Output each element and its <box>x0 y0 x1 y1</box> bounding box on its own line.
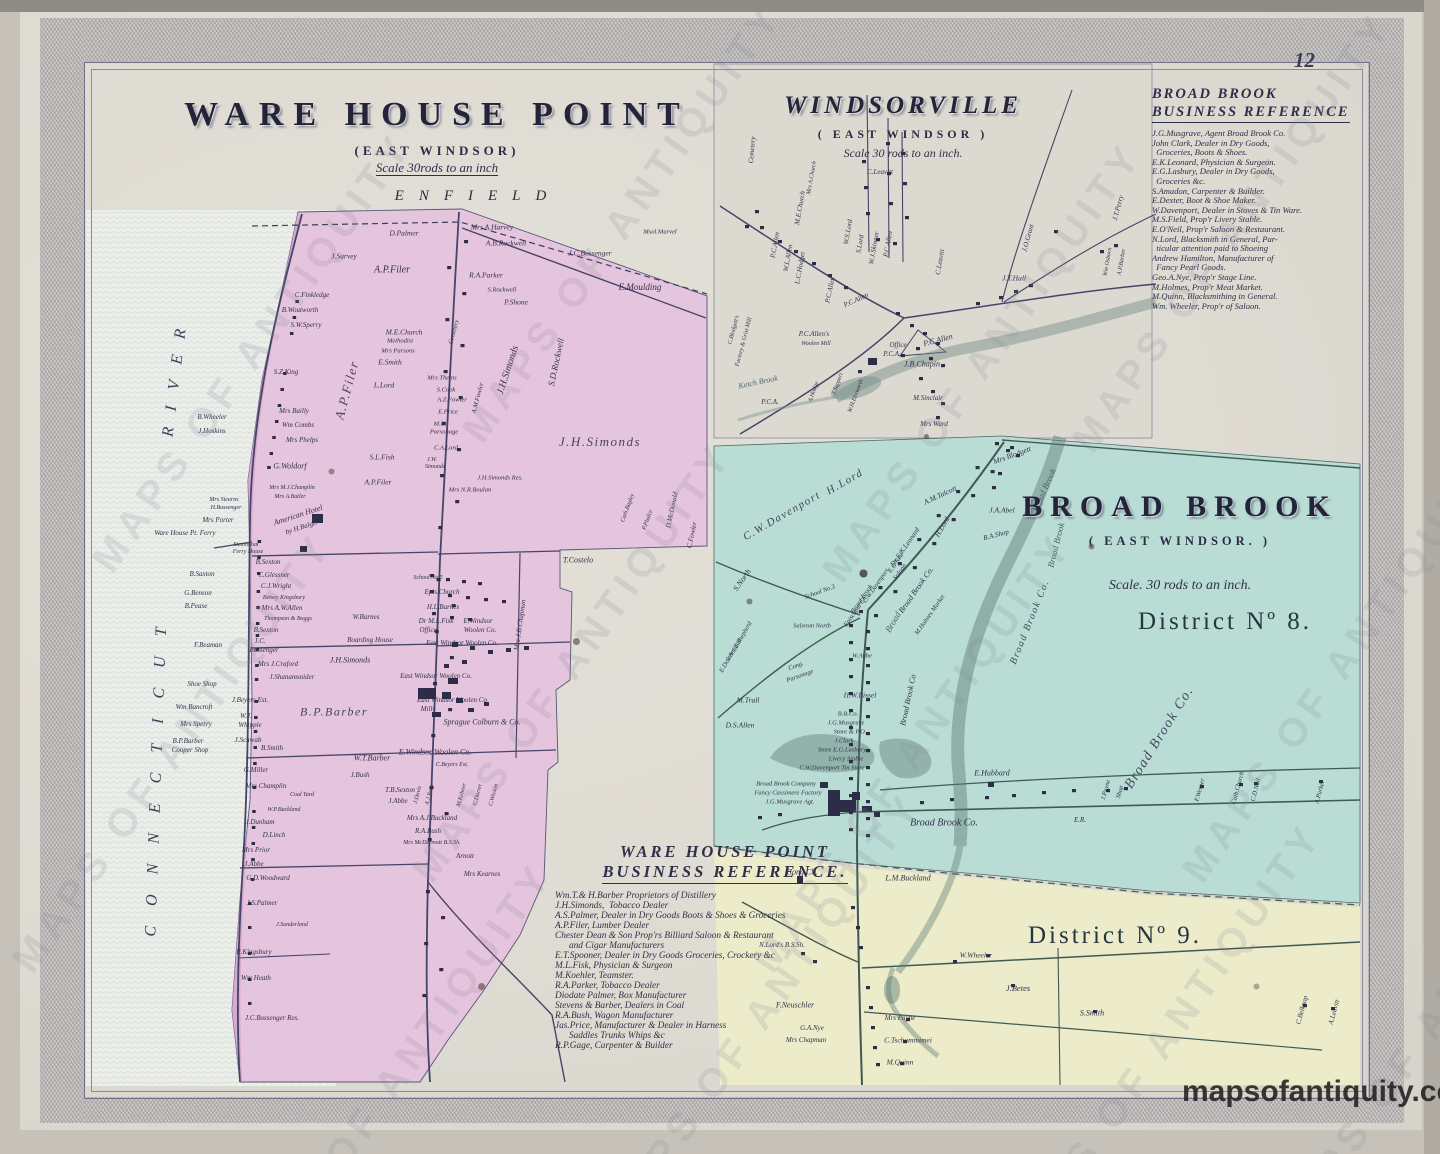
reference-entry: Saddles Trunks Whips &c <box>555 1031 895 1041</box>
reference-entry: A.S.Palmer, Dealer in Dry Goods Boots & … <box>555 911 895 921</box>
reference-entry: R.A.Bush, Wagon Manufacturer <box>555 1011 895 1021</box>
district-9-label: District Nº 9. <box>1028 922 1202 950</box>
windsorville-scale: Scale 30 rods to an inch. <box>844 146 963 161</box>
reference-entry: J.H.Simonds, Tobacco Dealer <box>555 901 895 911</box>
reference-entry: M.Koehler, Teamster. <box>555 971 895 981</box>
reference-entry: R.A.Parker, Tobacco Dealer <box>555 981 895 991</box>
windsorville-subtitle: ( EAST WINDSOR ) <box>818 127 989 142</box>
reference-entry: Wm.T.& H.Barber Proprietors of Distiller… <box>555 891 895 901</box>
windsorville-title: WINDSORVILLE <box>784 92 1022 120</box>
reference-entry: Diodate Palmer, Box Manufacturer <box>555 991 895 1001</box>
reference-entry: R.P.Gage, Carpenter & Builder <box>555 1041 895 1051</box>
broad-brook-reference-entries: J.G.Musgrave, Agent Broad Brook Co.John … <box>1152 129 1377 311</box>
district-8-label: District Nº 8. <box>1138 608 1312 636</box>
reference-entry: A.P.Filer, Lumber Dealer <box>555 921 895 931</box>
warehouse-reference-title2: BUSINESS REFERENCE. <box>602 862 847 884</box>
broad-brook-reference-title2: BUSINESS REFERENCE <box>1152 104 1350 123</box>
broad-brook-subtitle: ( EAST WINDSOR. ) <box>1089 534 1271 549</box>
reference-entry: M.L.Fisk, Physician & Surgeon <box>555 961 895 971</box>
broad-brook-reference: BROAD BROOK BUSINESS REFERENCE J.G.Musgr… <box>1152 86 1377 311</box>
reference-entry: Wm. Wheeler, Prop'r of Saloon. <box>1152 302 1377 312</box>
warehouse-reference-title1: WARE HOUSE POINT <box>555 842 895 862</box>
broad-brook-title: BROAD BROOK <box>1022 490 1338 524</box>
broad-brook-reference-title1: BROAD BROOK <box>1152 86 1377 103</box>
site-watermark: mapsofantiquity.com <box>1182 1075 1440 1109</box>
foxing-spots <box>0 0 3 3</box>
reference-entry: Stevens & Barber, Dealers in Coal <box>555 1001 895 1011</box>
reference-entry: and Cigar Manufacturers <box>555 941 895 951</box>
warehouse-point-reference: WARE HOUSE POINT BUSINESS REFERENCE. Wm.… <box>555 842 895 1051</box>
warehouse-reference-entries: Wm.T.& H.Barber Proprietors of Distiller… <box>555 891 895 1051</box>
warehouse-point-title: WARE HOUSE POINT <box>184 96 690 134</box>
enfield-label: ENFIELD <box>395 188 562 205</box>
reference-entry: Jas.Price, Manufacturer & Dealer in Harn… <box>555 1021 895 1031</box>
broad-brook-scale: Scale. 30 rods to an inch. <box>1109 578 1251 594</box>
page-number: 12 <box>1294 48 1315 73</box>
reference-entry: E.T.Spooner, Dealer in Dry Goods Groceri… <box>555 951 895 961</box>
warehouse-point-scale: Scale 30rods to an inch <box>376 160 498 176</box>
warehouse-point-subtitle: (EAST WINDSOR) <box>355 143 520 159</box>
photo-background: D.PalmerMrs A.HarveyA.B.RockwellJ.C.Boss… <box>0 0 1440 1154</box>
reference-entry: Chester Dean & Son Prop'rs Billiard Salo… <box>555 931 895 941</box>
